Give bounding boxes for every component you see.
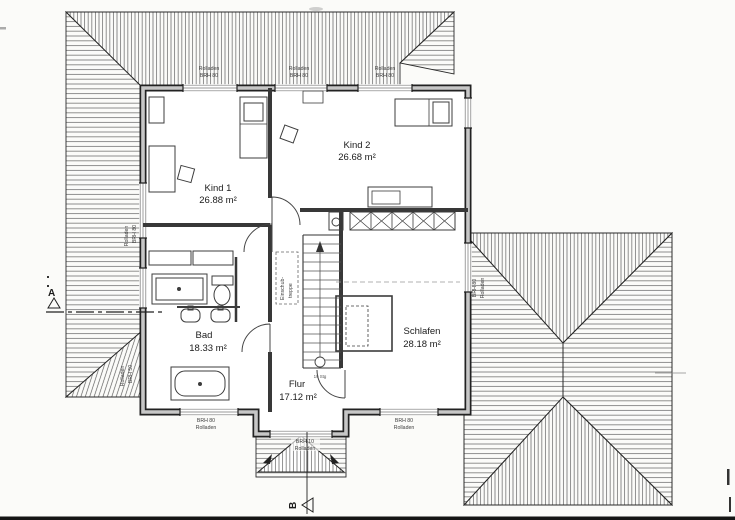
- rolladen-label: Rolladen: [120, 366, 126, 387]
- brh-label: BRH 80: [290, 73, 308, 79]
- rolladen-label: Rolladen: [295, 446, 316, 452]
- room-area-bad: 18.33 m²: [189, 343, 227, 354]
- brh-label: BRH 80: [200, 73, 218, 79]
- room-name-bad: Bad: [196, 330, 213, 341]
- brh-label: BRH 50: [128, 365, 134, 383]
- brh-label: BRH 80: [472, 279, 478, 297]
- rolladen-label: Rolladen: [124, 226, 130, 247]
- brh-label: BRH 80: [197, 418, 215, 424]
- window-right-1: [464, 98, 472, 128]
- window-bay-south: [270, 430, 332, 438]
- room-area-schlafen: 28.18 m²: [403, 339, 441, 350]
- svg-text:B: B: [288, 502, 299, 509]
- rolladen-label: Rolladen: [196, 425, 217, 431]
- brh-label: BRH 80: [376, 73, 394, 79]
- room-area-kind2: 26.68 m²: [338, 152, 376, 163]
- brh-label: BRH 80: [395, 418, 413, 424]
- rolladen-label: Rolladen: [375, 66, 396, 72]
- rolladen-label: Rolladen: [394, 425, 415, 431]
- floor-plan-drawing: 19 Stg Einschub- treppe: [0, 0, 735, 520]
- room-name-kind2: Kind 2: [344, 140, 371, 151]
- brh-label: BRH 80: [132, 225, 138, 243]
- roof-east-hip: [464, 233, 672, 505]
- window-bottom-2: [380, 408, 438, 416]
- floor-plan-page: 19 Stg Einschub- treppe: [0, 0, 735, 520]
- room-name-schlafen: Schlafen: [404, 326, 441, 337]
- room-area-kind1: 26.88 m²: [199, 195, 237, 206]
- window-left-2: [139, 268, 147, 308]
- room-name-flur: Flur: [289, 379, 305, 390]
- loft-ladder-label-1: Einschub-: [280, 277, 286, 300]
- window-left-1: [139, 183, 147, 238]
- loft-ladder-label-2: treppe: [288, 283, 294, 298]
- exterior-walls: [143, 88, 468, 434]
- rolladen-label: Rolladen: [289, 66, 310, 72]
- room-name-kind1: Kind 1: [205, 183, 232, 194]
- window-top-1: [183, 84, 237, 92]
- rolladen-label: Rolladen: [199, 66, 220, 72]
- brh-label: BRH 10: [296, 439, 314, 445]
- window-bottom-1: [180, 408, 238, 416]
- window-top-3: [358, 84, 412, 92]
- window-right-2: [464, 243, 472, 292]
- room-area-flur: 17.12 m²: [279, 392, 317, 403]
- stair-count-label: 19 Stg: [314, 374, 327, 379]
- rolladen-label: Rolladen: [480, 278, 486, 299]
